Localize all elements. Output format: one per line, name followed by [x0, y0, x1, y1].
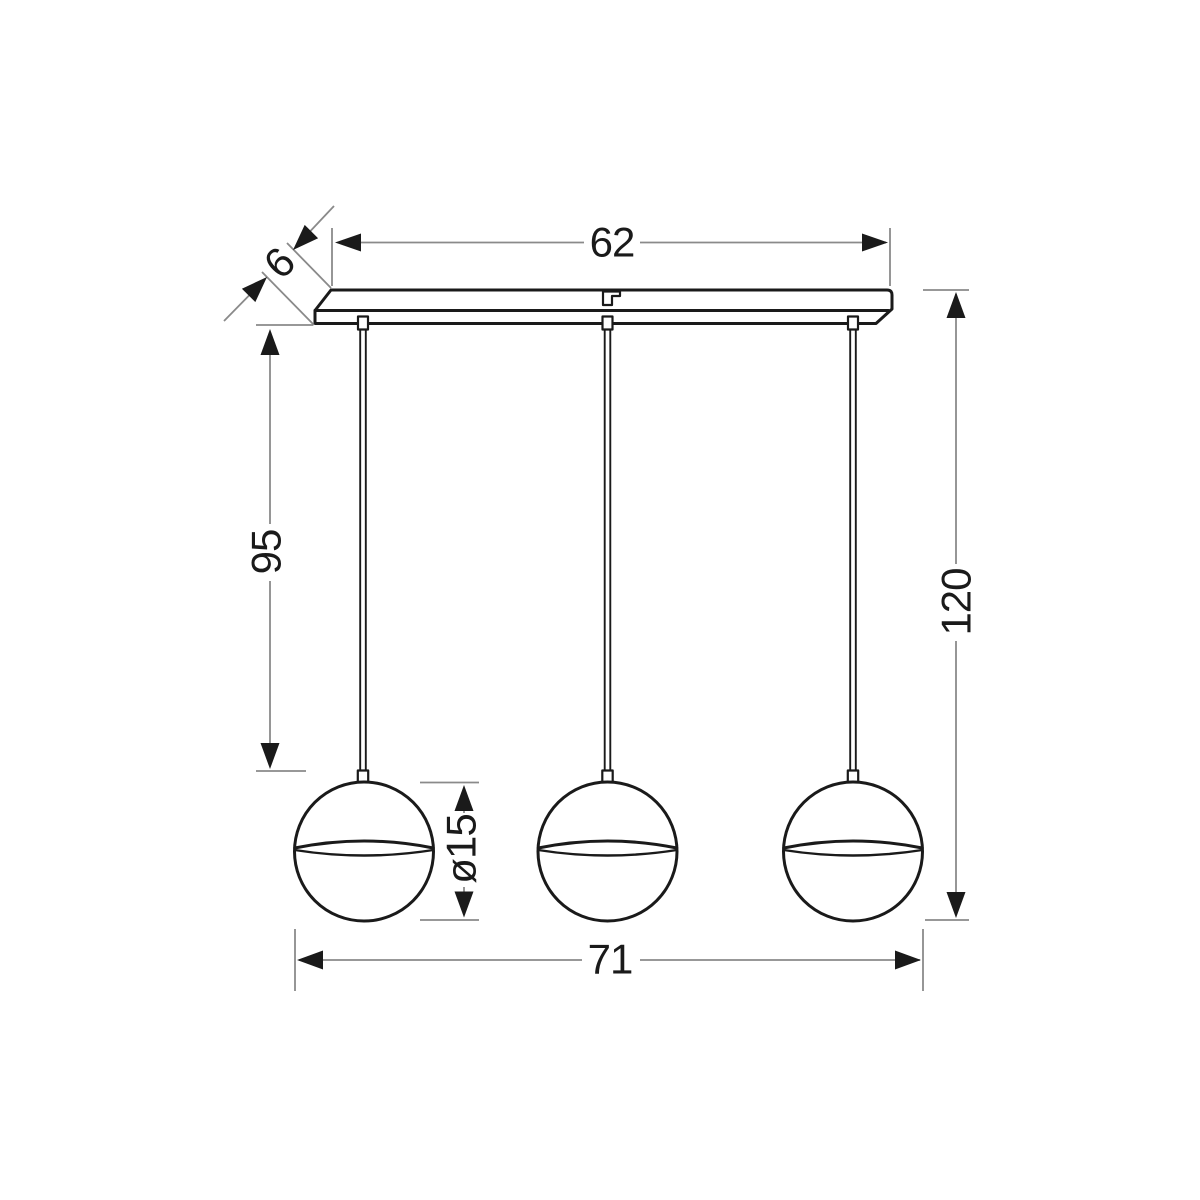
dimension-overall-height: 120 [923, 290, 980, 920]
dim71-arrow-right [895, 951, 921, 970]
dim62-arrow-right [862, 234, 888, 252]
bar-length-label: 62 [590, 219, 635, 266]
cable-left-wires [360, 328, 366, 772]
suspension-drop-label: 95 [243, 530, 290, 575]
cable-left [358, 317, 368, 783]
dim6-arrow-upper [293, 225, 318, 250]
dim120-arrow-top [947, 292, 966, 318]
cable-middle-wires [605, 328, 611, 772]
dim15-arrow-top [455, 785, 474, 811]
dim15-arrow-bottom [455, 892, 474, 918]
dim6-line-lower [224, 295, 250, 322]
dim95-arrow-top [261, 329, 280, 355]
globe-left-outline [295, 782, 434, 921]
technical-drawing-canvas: 62 6 95 120 ø15 71 [0, 0, 1200, 1200]
cable-middle [602, 317, 612, 783]
shade-diameter-label: ø15 [438, 814, 485, 883]
globe-shade-left [295, 782, 434, 921]
dimension-suspension-drop: 95 [243, 325, 314, 771]
overall-height-label: 120 [933, 568, 980, 635]
cable-middle-top-connector [603, 317, 613, 330]
dim6-line-upper [310, 206, 334, 232]
cable-left-top-connector [358, 317, 368, 330]
overall-width-label: 71 [588, 936, 633, 983]
cable-right [848, 317, 858, 783]
dimension-bar-length: 62 [332, 219, 890, 287]
lamp-dimension-drawing: 62 6 95 120 ø15 71 [0, 0, 1200, 1200]
dim62-arrow-left [335, 234, 361, 252]
globe-right-outline [784, 782, 923, 921]
cable-right-top-connector [848, 317, 858, 330]
dim71-arrow-left [297, 951, 323, 970]
globe-shade-right [784, 782, 923, 921]
dim120-arrow-bottom [947, 892, 966, 918]
globe-shade-middle [538, 782, 677, 921]
dimension-overall-width: 71 [295, 929, 923, 991]
globe-middle-outline [538, 782, 677, 921]
dim95-arrow-bottom [261, 743, 280, 769]
cable-right-wires [850, 328, 856, 772]
